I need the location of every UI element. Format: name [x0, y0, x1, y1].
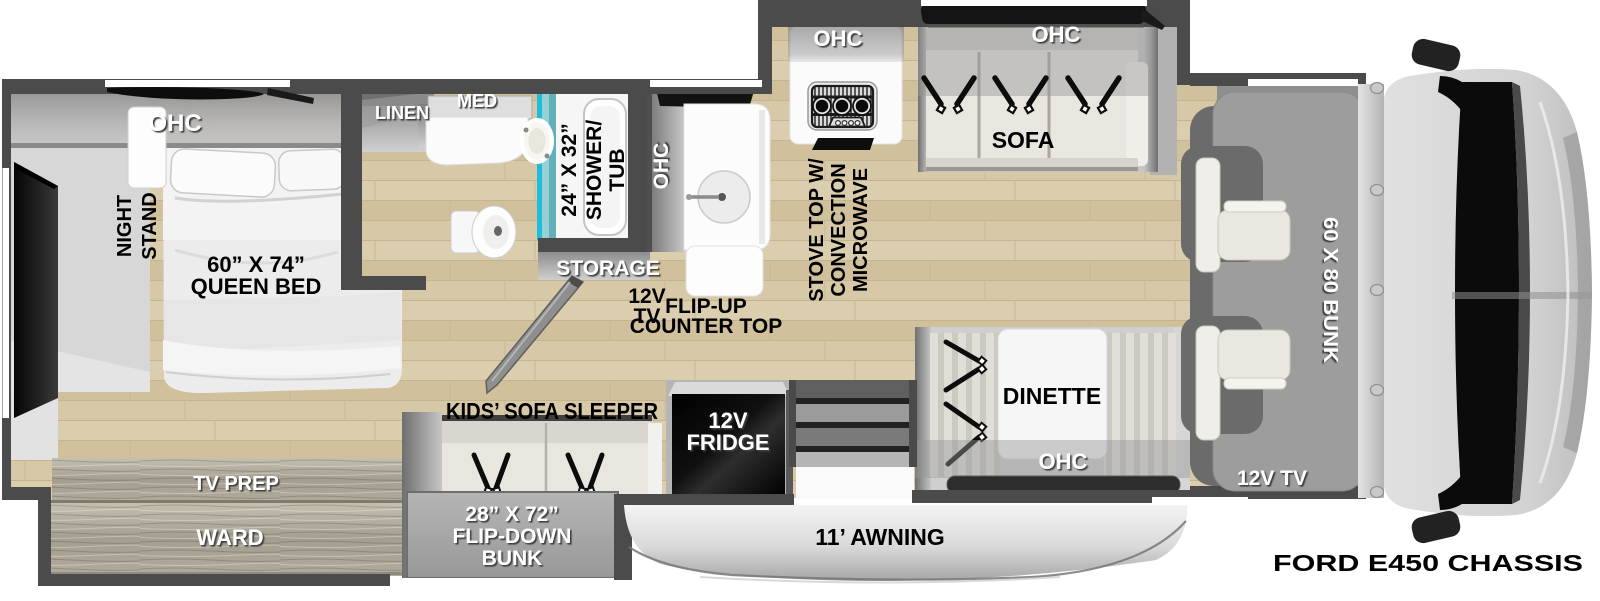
svg-text:CONVECTION: CONVECTION [828, 163, 850, 296]
svg-text:OHC: OHC [1039, 449, 1088, 474]
svg-text:28” X 72”: 28” X 72” [465, 503, 558, 526]
svg-text:QUEEN BED: QUEEN BED [191, 274, 322, 299]
svg-text:60 X 80 BUNK: 60 X 80 BUNK [1319, 217, 1341, 364]
svg-text:MICROWAVE: MICROWAVE [850, 168, 872, 292]
svg-text:OHC: OHC [148, 110, 201, 137]
svg-text:FRIDGE: FRIDGE [686, 430, 769, 455]
svg-text:SOFA: SOFA [992, 127, 1055, 153]
svg-text:KIDS’ SOFA SLEEPER: KIDS’ SOFA SLEEPER [446, 398, 658, 424]
svg-text:STOVE TOP W/: STOVE TOP W/ [806, 158, 828, 302]
svg-text:24” X 32”: 24” X 32” [558, 123, 581, 216]
svg-text:STAND: STAND [139, 192, 161, 259]
svg-text:SHOWER/: SHOWER/ [583, 120, 606, 221]
svg-text:FLIP-DOWN: FLIP-DOWN [453, 525, 572, 548]
svg-text:TV PREP: TV PREP [193, 473, 279, 495]
svg-text:BUNK: BUNK [482, 547, 543, 570]
svg-text:MED: MED [457, 91, 497, 111]
svg-text:OHC: OHC [814, 26, 863, 51]
svg-text:NIGHT: NIGHT [114, 195, 136, 257]
svg-text:LINEN: LINEN [375, 103, 429, 123]
svg-text:OHC: OHC [1032, 22, 1081, 47]
svg-text:OHC: OHC [650, 143, 673, 190]
svg-text:11’ AWNING: 11’ AWNING [815, 524, 945, 550]
svg-text:TUB: TUB [606, 148, 629, 191]
svg-text:WARD: WARD [196, 525, 263, 550]
svg-text:FORD E450 CHASSIS: FORD E450 CHASSIS [1273, 550, 1583, 576]
svg-text:12V TV: 12V TV [1237, 467, 1307, 490]
svg-text:COUNTER TOP: COUNTER TOP [630, 315, 782, 338]
svg-text:DINETTE: DINETTE [1003, 383, 1101, 409]
svg-text:STORAGE: STORAGE [556, 257, 659, 280]
